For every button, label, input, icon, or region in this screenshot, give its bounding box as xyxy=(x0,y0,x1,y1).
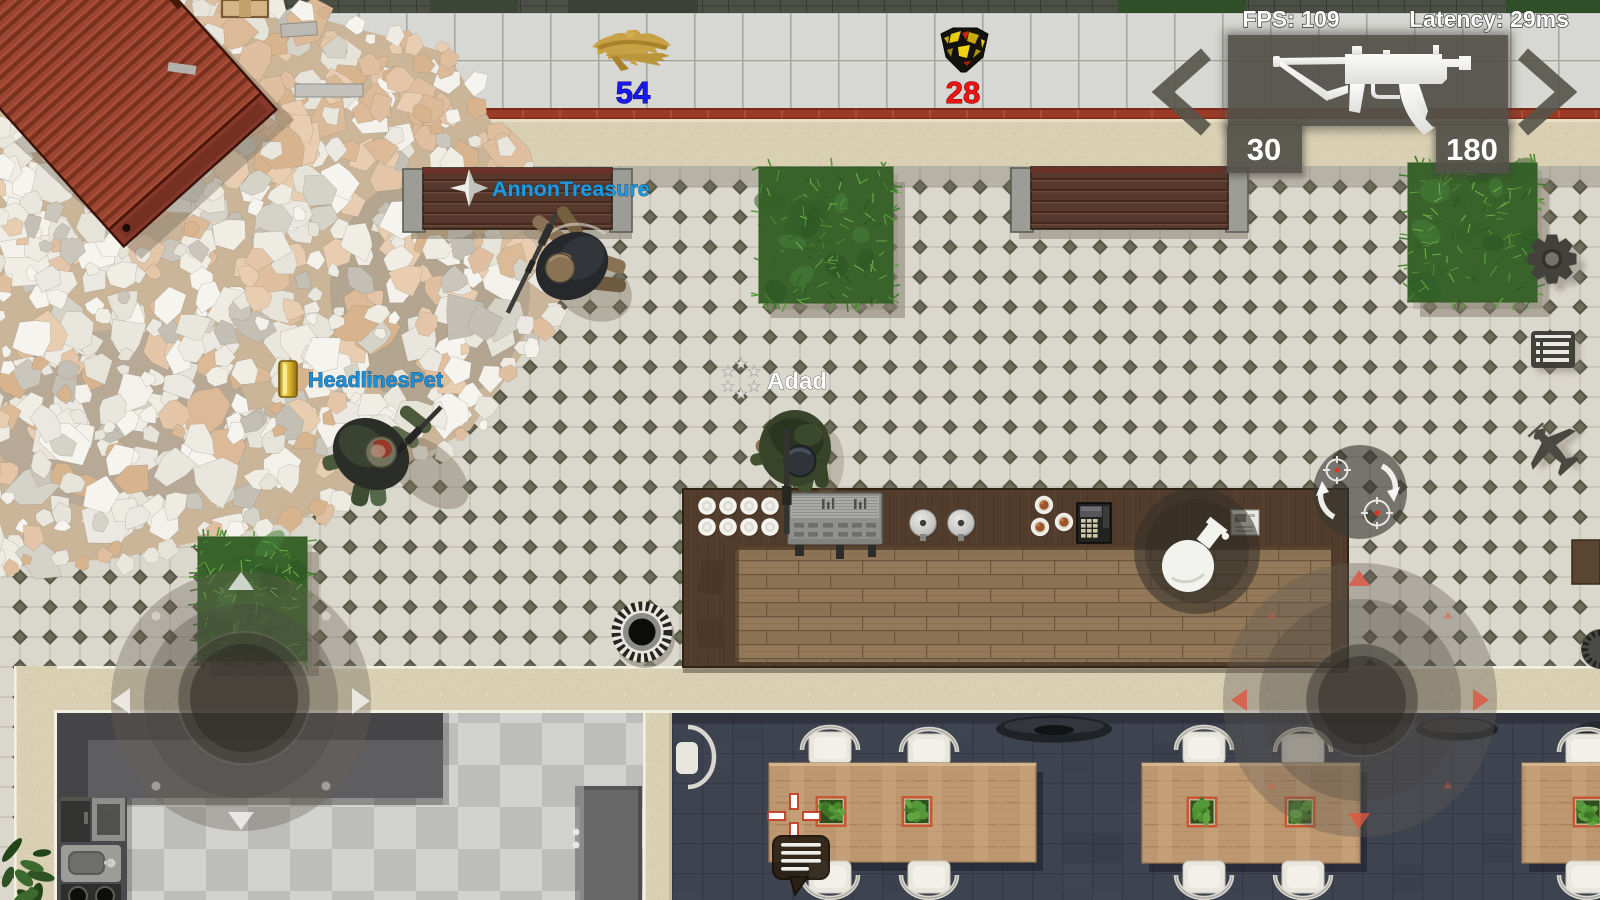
svg-text:28: 28 xyxy=(946,75,980,110)
svg-text:180: 180 xyxy=(1446,132,1498,167)
svg-text:54: 54 xyxy=(616,75,651,110)
svg-text:HeadlinesPet: HeadlinesPet xyxy=(308,368,443,392)
svg-text:AnnonTreasure: AnnonTreasure xyxy=(492,177,650,201)
svg-text:30: 30 xyxy=(1247,132,1281,167)
svg-text:Latency: 29ms: Latency: 29ms xyxy=(1409,6,1569,32)
svg-text:FPS: 109: FPS: 109 xyxy=(1242,6,1339,32)
svg-text:Adad: Adad xyxy=(767,368,827,395)
